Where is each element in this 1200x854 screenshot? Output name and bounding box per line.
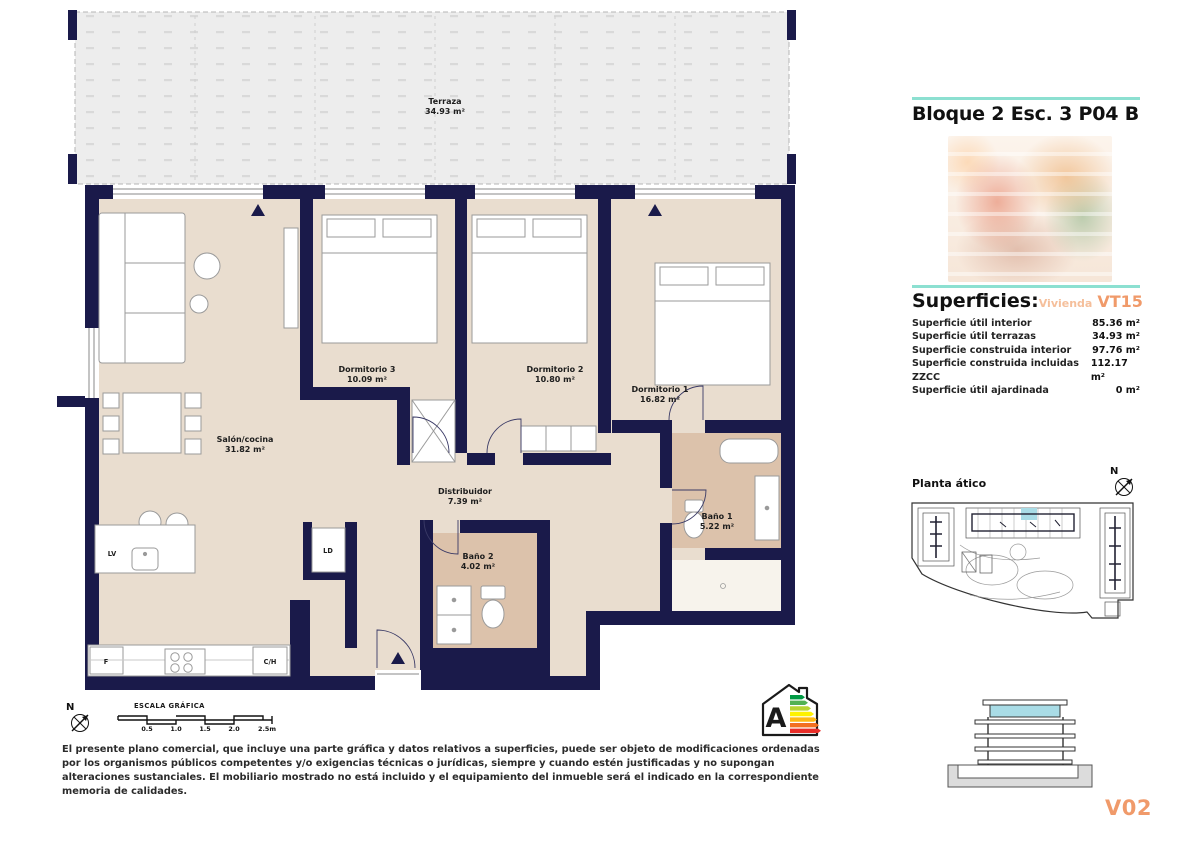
highlighted-penthouse-floor	[990, 705, 1060, 717]
teal-divider-superficies	[912, 285, 1140, 288]
teal-divider-top	[912, 97, 1140, 100]
label-distribuidor: Distribuidor	[438, 487, 492, 496]
label-salon: Salón/cocina	[217, 434, 274, 444]
svg-text:N: N	[66, 702, 74, 713]
site-plan	[900, 500, 1145, 625]
table-row: Superficie construida incluidas ZZCC 112…	[912, 357, 1140, 384]
svg-text:10.80 m²: 10.80 m²	[535, 375, 575, 384]
version-code: V02	[1105, 796, 1152, 820]
label-bath2: Baño 2	[462, 552, 493, 561]
label-bath1: Baño 1	[701, 512, 732, 521]
scale-bar: ESCALA GRÁFICA 0.5 1.0 1.5 2.0 2.5m	[112, 702, 282, 736]
compass-icon: N	[1106, 462, 1138, 500]
table-row: Superficie útil terrazas 34.93 m²	[912, 330, 1140, 343]
terrace-area: Terraza 34.93 m²	[68, 10, 796, 184]
svg-text:1.0: 1.0	[170, 725, 182, 732]
svg-text:2.0: 2.0	[228, 725, 240, 732]
compass-icon: N	[62, 698, 94, 736]
superficies-heading: Superficies:	[912, 290, 1039, 312]
svg-text:2.5m: 2.5m	[258, 725, 276, 732]
svg-text:A: A	[766, 703, 787, 734]
section-elevation	[945, 695, 1095, 795]
svg-text:31.82 m²: 31.82 m²	[225, 445, 265, 454]
svg-text:16.82 m²: 16.82 m²	[640, 395, 680, 404]
terrace-area-value: 34.93 m²	[425, 107, 465, 116]
terrace-label: Terraza	[428, 97, 461, 106]
site-plan-label: Planta ático	[912, 477, 986, 490]
page-title: Bloque 2 Esc. 3 P04 B	[912, 103, 1139, 125]
superficies-table: Superficie útil interior 85.36 m² Superf…	[912, 317, 1140, 397]
vivienda-label: Vivienda	[1039, 297, 1093, 310]
svg-text:7.39 m²: 7.39 m²	[448, 497, 483, 506]
scale-title: ESCALA GRÁFICA	[134, 702, 282, 710]
label-f: F	[104, 658, 109, 666]
svg-text:5.22 m²: 5.22 m²	[700, 522, 735, 531]
svg-text:4.02 m²: 4.02 m²	[461, 562, 496, 571]
entrance-door	[375, 670, 421, 690]
label-lv: LV	[108, 550, 117, 558]
disclaimer-text: El presente plano comercial, que incluye…	[62, 743, 820, 799]
energy-rating-house-icon: A	[753, 680, 825, 740]
vestibule-floor	[672, 560, 781, 611]
svg-text:N: N	[1110, 466, 1118, 477]
superficies-header: Superficies: Vivienda VT15	[912, 290, 1140, 312]
plan-sheet: Terraza 34.93 m²	[0, 0, 1200, 854]
table-row: Superficie útil ajardinada 0 m²	[912, 384, 1140, 397]
table-row: Superficie útil interior 85.36 m²	[912, 317, 1140, 330]
label-dorm1: Dormitorio 1	[631, 385, 688, 394]
svg-text:1.5: 1.5	[199, 725, 210, 732]
svg-text:0.5: 0.5	[141, 725, 152, 732]
building-render-image	[948, 136, 1112, 282]
label-dorm2: Dormitorio 2	[526, 365, 583, 374]
floor-plan: Terraza 34.93 m²	[55, 8, 835, 698]
svg-text:10.09 m²: 10.09 m²	[347, 375, 387, 384]
table-row: Superficie construida interior 97.76 m²	[912, 344, 1140, 357]
scale-bar-graphic: 0.5 1.0 1.5 2.0 2.5m	[112, 710, 282, 732]
label-ch: C/H	[264, 658, 277, 666]
vivienda-code: VT15	[1097, 292, 1143, 311]
label-ld: LD	[323, 547, 333, 555]
label-dorm3: Dormitorio 3	[338, 365, 395, 374]
